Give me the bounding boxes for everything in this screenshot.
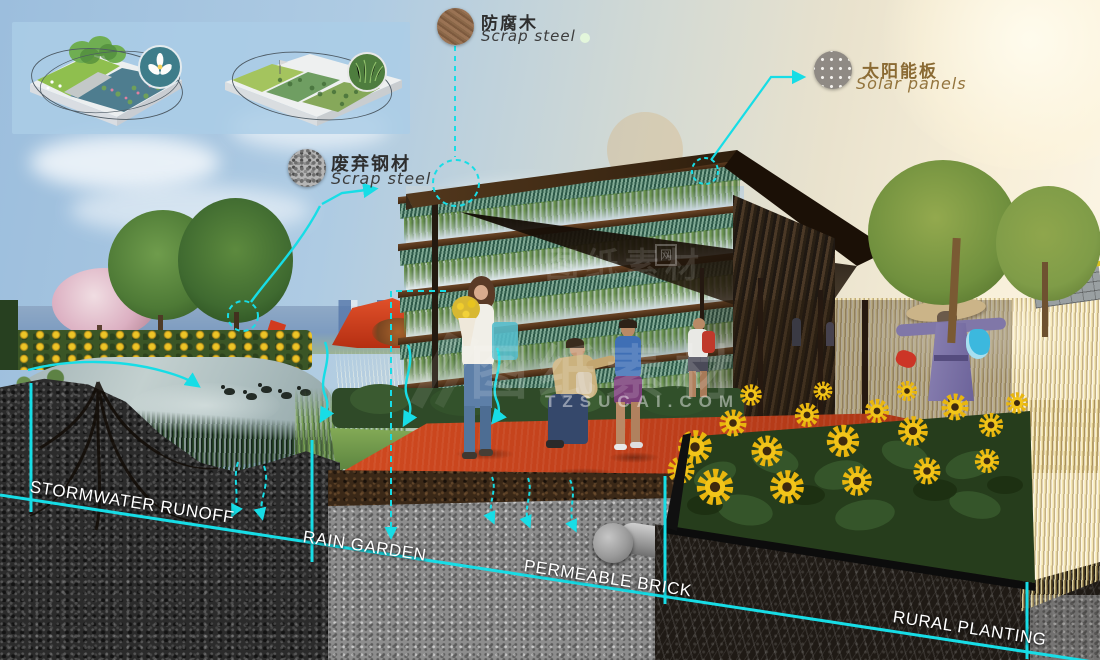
leg bbox=[700, 371, 707, 397]
shoe bbox=[462, 452, 477, 459]
hair bbox=[619, 319, 637, 328]
gravel-right-corner bbox=[1030, 595, 1100, 660]
wood-label-en: Scrap steel bbox=[481, 27, 576, 45]
right-tree bbox=[868, 160, 1018, 305]
person-kid-backpack bbox=[684, 318, 718, 404]
shoe bbox=[479, 449, 493, 456]
leg bbox=[631, 402, 640, 444]
inset-panel bbox=[12, 22, 410, 134]
red-backpack bbox=[702, 331, 715, 353]
shoe bbox=[546, 440, 564, 448]
cloud bbox=[30, 135, 220, 190]
scarecrow-pole bbox=[948, 399, 954, 425]
satchel bbox=[576, 372, 592, 394]
blue-bag bbox=[966, 329, 990, 359]
duck bbox=[224, 388, 235, 395]
person-kid-blue bbox=[606, 322, 656, 462]
person-woman-with-flowers bbox=[452, 276, 522, 461]
scrap-steel-label-en: Scrap steel bbox=[331, 169, 431, 188]
shoe bbox=[614, 444, 627, 450]
leg bbox=[616, 402, 625, 446]
hair bbox=[566, 338, 584, 348]
grass-detail-circle bbox=[348, 53, 386, 91]
tree-trunk bbox=[1042, 262, 1048, 337]
crouched-legs bbox=[548, 394, 588, 444]
face bbox=[474, 285, 488, 300]
inset-diagram-wetland-cells bbox=[225, 45, 402, 127]
leg bbox=[480, 406, 491, 451]
scarecrow-sash bbox=[934, 355, 968, 361]
wheat-strip bbox=[1020, 400, 1100, 612]
green-tree bbox=[178, 198, 293, 323]
jeans bbox=[464, 364, 492, 408]
right-tree bbox=[996, 186, 1100, 301]
leg bbox=[689, 371, 696, 397]
lens-flare bbox=[580, 33, 590, 43]
duck bbox=[261, 386, 272, 393]
scrap-steel-swatch bbox=[288, 149, 326, 187]
duck bbox=[246, 393, 257, 400]
wood-swatch bbox=[437, 8, 474, 45]
solar-panel-swatch bbox=[814, 51, 852, 89]
purple-shorts bbox=[614, 376, 642, 404]
left-edge-bush bbox=[0, 300, 18, 370]
tote-bag bbox=[492, 322, 518, 360]
background-figure bbox=[826, 322, 834, 346]
blue-top bbox=[615, 336, 641, 378]
duck bbox=[281, 392, 292, 399]
inset-diagram-lotus-pond bbox=[27, 36, 187, 128]
shorts bbox=[688, 357, 708, 372]
hedge-bush bbox=[350, 384, 410, 414]
solar-label-en: Solar panels bbox=[856, 74, 967, 93]
leg bbox=[464, 406, 475, 454]
solar-callout-arrow bbox=[711, 77, 802, 160]
inset-diagrams bbox=[12, 22, 410, 134]
background-figure bbox=[792, 318, 801, 346]
pipe-end bbox=[593, 523, 633, 563]
shoe bbox=[630, 442, 643, 448]
steel-callout-arrow bbox=[322, 189, 374, 204]
landscape-section-rendering: 防腐木 Scrap steel 废弃钢材 Scrap steel 太阳能板 So… bbox=[0, 0, 1100, 660]
